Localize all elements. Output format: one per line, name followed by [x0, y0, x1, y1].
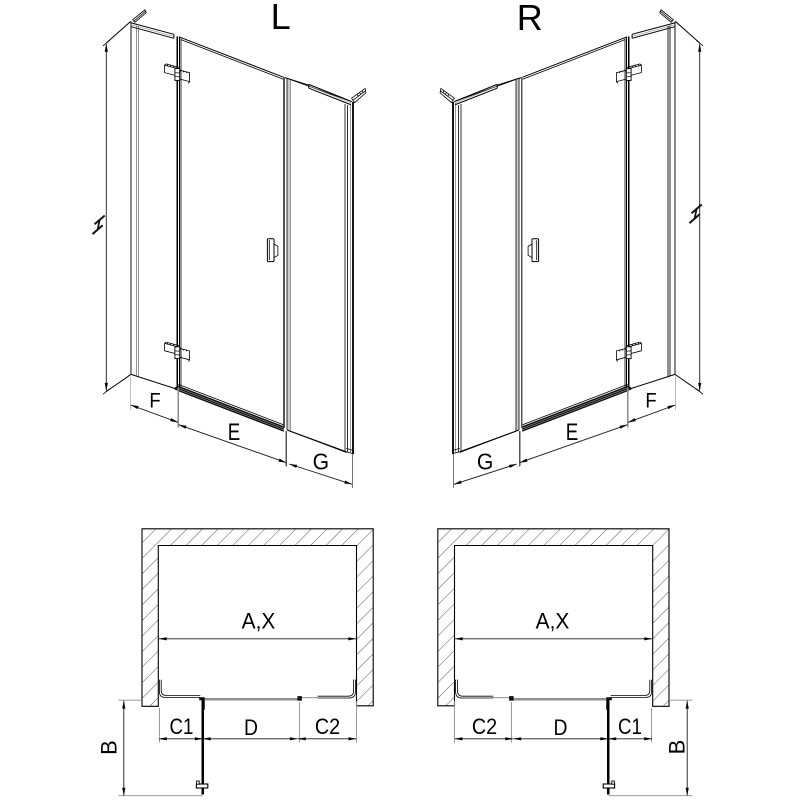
svg-text:A,X: A,X: [536, 609, 570, 634]
svg-text:B: B: [96, 740, 121, 755]
svg-text:G: G: [313, 449, 329, 475]
svg-text:F: F: [149, 390, 160, 413]
svg-text:L: L: [271, 0, 291, 37]
svg-text:C1: C1: [170, 716, 194, 740]
svg-text:F: F: [645, 390, 656, 413]
svg-text:R: R: [517, 0, 543, 38]
svg-text:C2: C2: [472, 715, 497, 739]
svg-text:E: E: [228, 419, 240, 446]
svg-text:B: B: [664, 740, 689, 755]
svg-text:D: D: [244, 716, 258, 740]
svg-text:C2: C2: [315, 715, 340, 739]
svg-text:C1: C1: [618, 716, 642, 740]
svg-text:A,X: A,X: [242, 609, 276, 634]
svg-text:D: D: [554, 716, 568, 740]
svg-text:G: G: [477, 449, 493, 475]
svg-text:E: E: [566, 419, 578, 446]
